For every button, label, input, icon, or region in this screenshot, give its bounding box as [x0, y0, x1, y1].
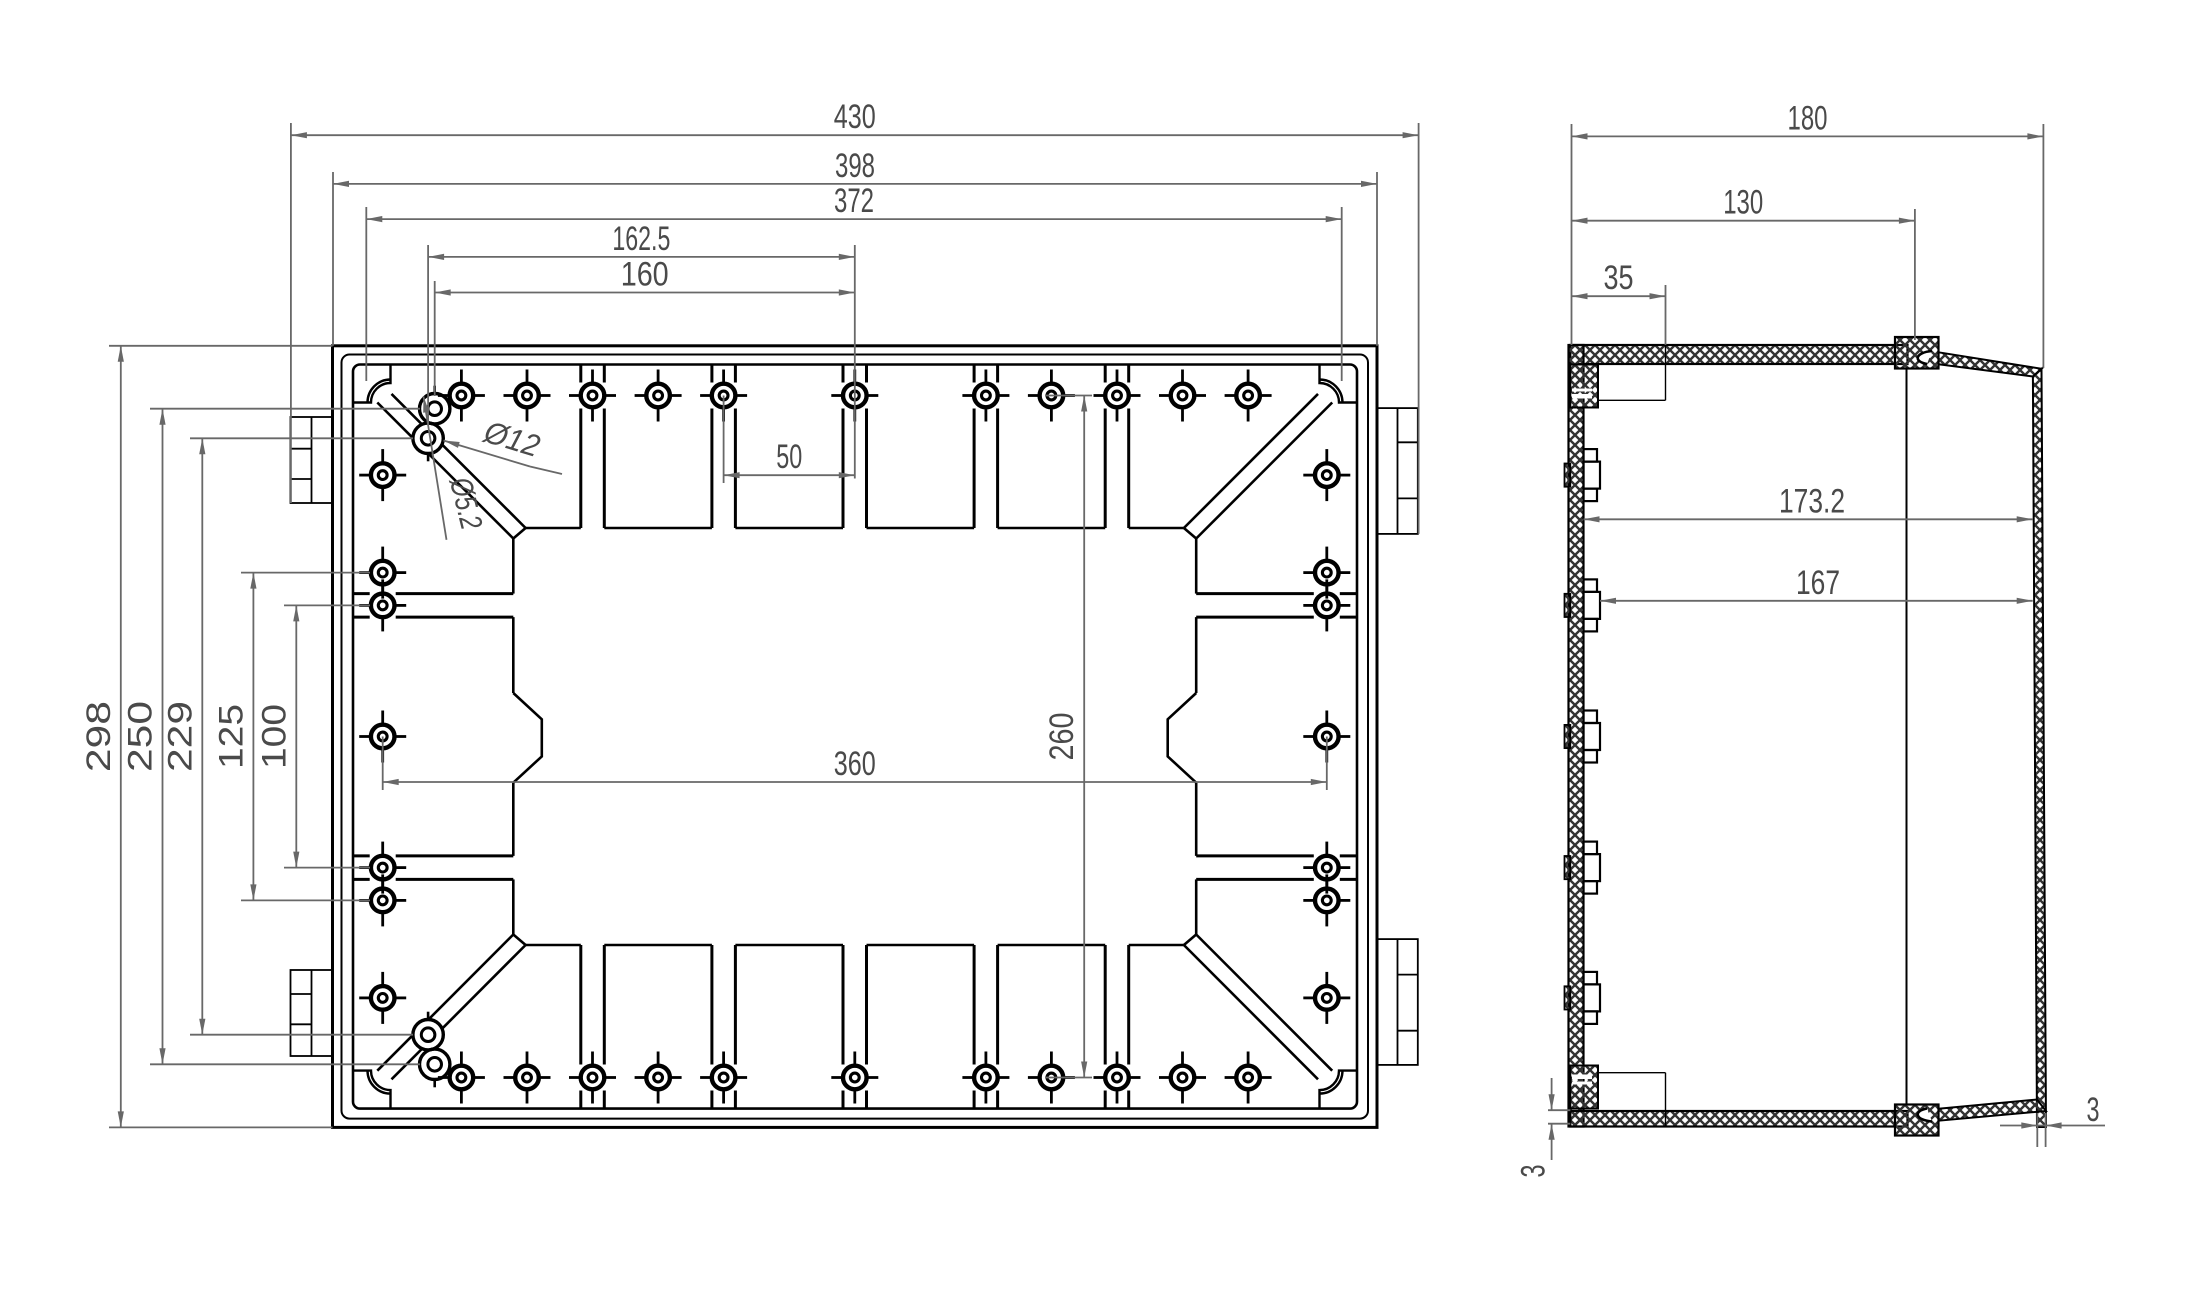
- svg-text:167: 167: [1796, 564, 1840, 602]
- svg-text:3: 3: [1515, 1165, 1553, 1178]
- svg-text:260: 260: [1043, 713, 1081, 761]
- svg-text:430: 430: [834, 98, 876, 136]
- svg-text:250: 250: [122, 701, 160, 772]
- svg-text:160: 160: [621, 256, 669, 294]
- svg-text:130: 130: [1723, 184, 1763, 222]
- svg-text:162.5: 162.5: [612, 220, 670, 258]
- svg-text:229: 229: [161, 701, 199, 772]
- svg-text:173.2: 173.2: [1779, 482, 1845, 520]
- svg-text:3: 3: [2087, 1091, 2100, 1129]
- svg-text:Ø12: Ø12: [479, 414, 544, 464]
- svg-text:35: 35: [1604, 259, 1634, 297]
- svg-text:125: 125: [212, 704, 250, 769]
- svg-text:Ø5.2: Ø5.2: [443, 473, 490, 533]
- svg-text:372: 372: [834, 182, 874, 220]
- svg-text:180: 180: [1788, 99, 1828, 137]
- svg-text:398: 398: [835, 147, 875, 185]
- svg-text:360: 360: [834, 745, 876, 783]
- svg-text:100: 100: [255, 704, 293, 769]
- svg-text:298: 298: [80, 701, 118, 772]
- svg-text:50: 50: [776, 438, 802, 476]
